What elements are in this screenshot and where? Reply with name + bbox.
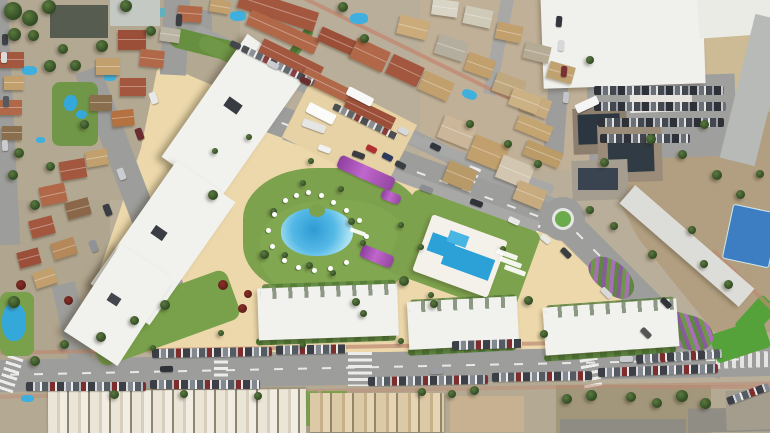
parasol [331,200,336,205]
parasol [344,260,349,265]
parasol [270,244,275,249]
parasol [328,266,333,271]
parasol [272,212,277,217]
sun-loungers [350,227,366,236]
pool-furniture [0,0,770,433]
parasol [296,265,301,270]
parasol [312,268,317,273]
parasol [306,190,311,195]
parasol [344,208,349,213]
aerial-photo [0,0,770,433]
parasol [357,218,362,223]
parasol [282,258,287,263]
parasol [266,228,271,233]
parasol [294,193,299,198]
parasol [283,198,288,203]
parasol [319,193,324,198]
